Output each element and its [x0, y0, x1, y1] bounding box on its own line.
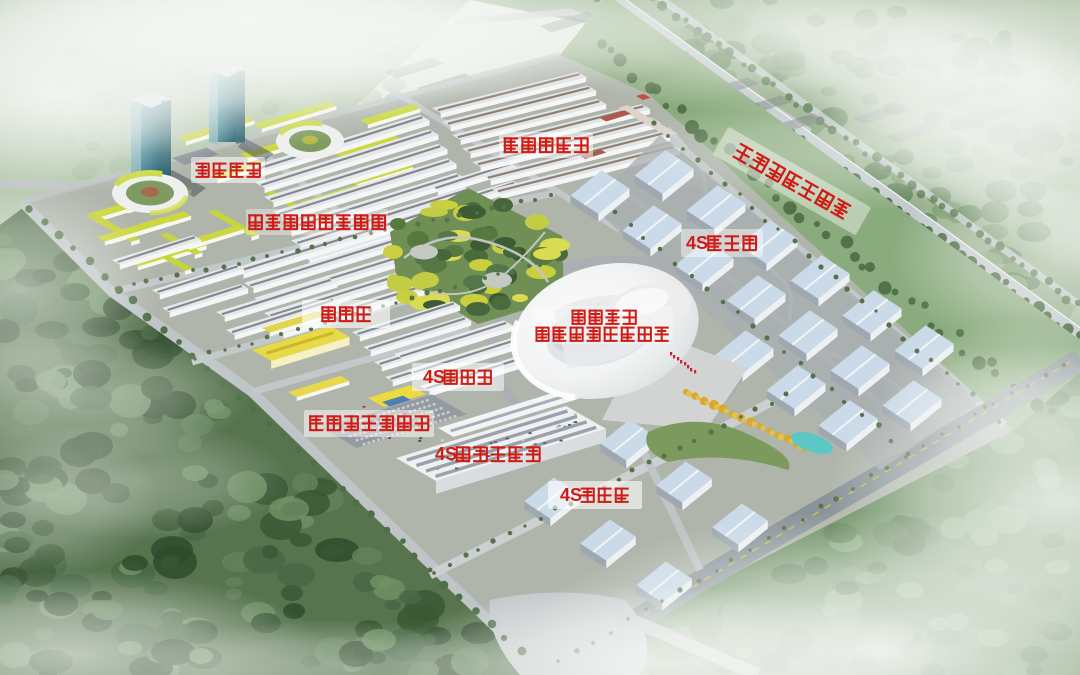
svg-text:4S: 4S — [686, 233, 708, 253]
svg-text:4S: 4S — [560, 485, 582, 505]
svg-text:4S: 4S — [435, 444, 457, 464]
svg-text:4S: 4S — [423, 367, 445, 387]
